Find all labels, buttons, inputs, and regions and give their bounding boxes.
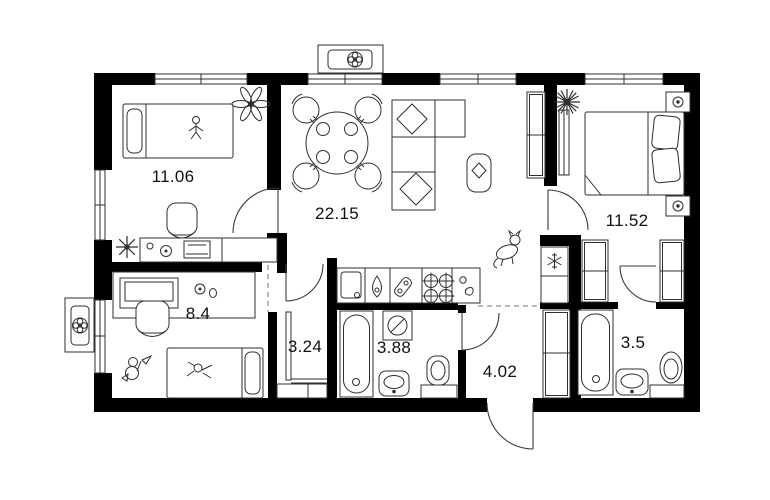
nightstand (666, 196, 690, 216)
area-label-wardrobe-niche: 3.24 (288, 337, 322, 357)
ceiling-light-icon (116, 236, 138, 258)
area-label-hallway: 4.02 (483, 362, 517, 382)
single-bed (123, 104, 233, 158)
door-bedroom-1 (233, 188, 278, 233)
door-bathroom (462, 313, 499, 350)
refrigerator (541, 247, 568, 303)
area-label-living-kitchen: 22.15 (315, 204, 359, 224)
area-label-toilet-bath: 3.5 (621, 333, 646, 353)
door-toilet-bathroom (620, 266, 656, 302)
floor-plan-svg (0, 0, 770, 500)
bathtub (578, 310, 613, 395)
door-kids-room (286, 264, 323, 301)
room-bedroom-1 (116, 86, 277, 262)
door-bedroom-2 (548, 190, 588, 230)
window-top-1 (155, 73, 247, 85)
corner-sofa (392, 100, 465, 210)
floor-plan: 11.06 22.15 11.52 8.4 3.24 3.88 4.02 3.5 (0, 0, 770, 500)
window-top-4 (585, 73, 663, 85)
pouf (467, 154, 491, 192)
room-toilet-bathroom (578, 310, 684, 398)
window-top-2 (308, 73, 382, 85)
computer-desk (113, 272, 255, 318)
side-panel (650, 385, 684, 398)
sink (616, 369, 648, 395)
area-label-bathroom: 3.88 (377, 338, 411, 358)
ceiling-light-icon (554, 89, 580, 115)
room-kids (113, 272, 263, 398)
double-bed (585, 112, 684, 195)
cat-icon (494, 231, 520, 268)
washing-machine (383, 311, 412, 340)
desk (140, 238, 277, 262)
kitchen-counter (337, 268, 480, 305)
toilet (427, 356, 449, 385)
ac-unit-left (65, 298, 94, 352)
bathtub (340, 311, 373, 397)
side-panel (421, 385, 457, 398)
plant-icon (232, 86, 270, 122)
wardrobe (660, 240, 684, 302)
desk-chair (136, 301, 169, 337)
shoe-shelf (277, 384, 327, 398)
ac-unit-top (318, 45, 383, 73)
window-left-1 (94, 170, 112, 240)
tall-cabinet (527, 92, 545, 178)
single-bed (167, 348, 263, 398)
area-label-bedroom-1: 11.06 (152, 167, 195, 187)
window-top-3 (440, 73, 516, 85)
room-hallway (543, 310, 570, 398)
hall-wardrobe (543, 310, 570, 398)
sink (379, 371, 409, 396)
area-label-bedroom-2: 11.52 (606, 211, 649, 231)
wardrobe (582, 240, 608, 302)
area-label-kids-room: 8.4 (186, 304, 211, 324)
wall-shelf (559, 110, 569, 175)
dining-table (306, 112, 368, 174)
toilet (660, 352, 682, 383)
window-left-2 (94, 300, 112, 373)
door-entrance (487, 403, 533, 449)
nightstand (666, 92, 690, 112)
toy-figure-icon (122, 356, 151, 381)
desk-chair (167, 203, 197, 238)
